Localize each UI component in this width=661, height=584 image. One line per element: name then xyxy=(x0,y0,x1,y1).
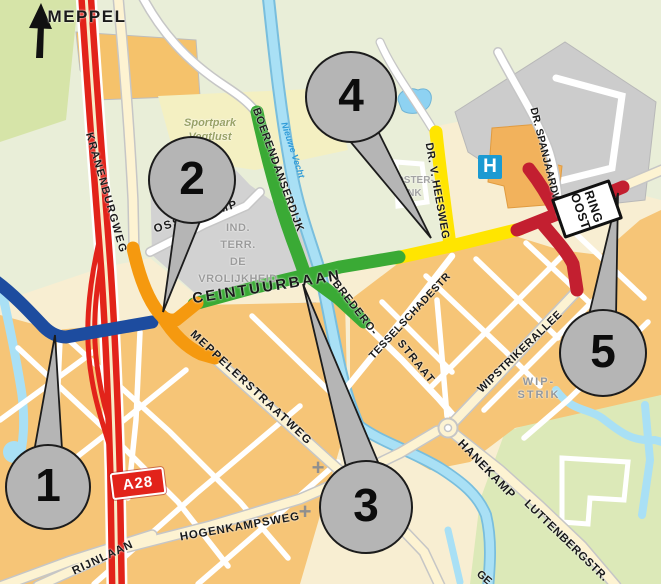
marker-5-number: 5 xyxy=(590,328,616,374)
marker-3-number: 3 xyxy=(353,482,379,528)
roundabout xyxy=(439,419,458,438)
city-map: MEPPEL KRANENBURGWEG OSSENKAMP Sportpark… xyxy=(0,0,661,584)
area-label-sportpark: Sportpark Vegtlust xyxy=(184,116,236,144)
blocks-southwest xyxy=(0,302,348,584)
area-label-oosterenk: OOSTER- ENK xyxy=(388,174,434,200)
hospital-icon: H xyxy=(478,155,502,179)
marker-4-number: 4 xyxy=(338,72,364,118)
map-canvas xyxy=(0,0,661,584)
marker-1-number: 1 xyxy=(35,462,61,508)
church-cross-icon: + xyxy=(312,455,325,481)
marker-2-number: 2 xyxy=(179,155,205,201)
destination-label: MEPPEL xyxy=(48,7,127,27)
church-cross-icon: + xyxy=(299,499,312,525)
area-label-wipstrik: WIP- STRIK xyxy=(518,376,561,402)
